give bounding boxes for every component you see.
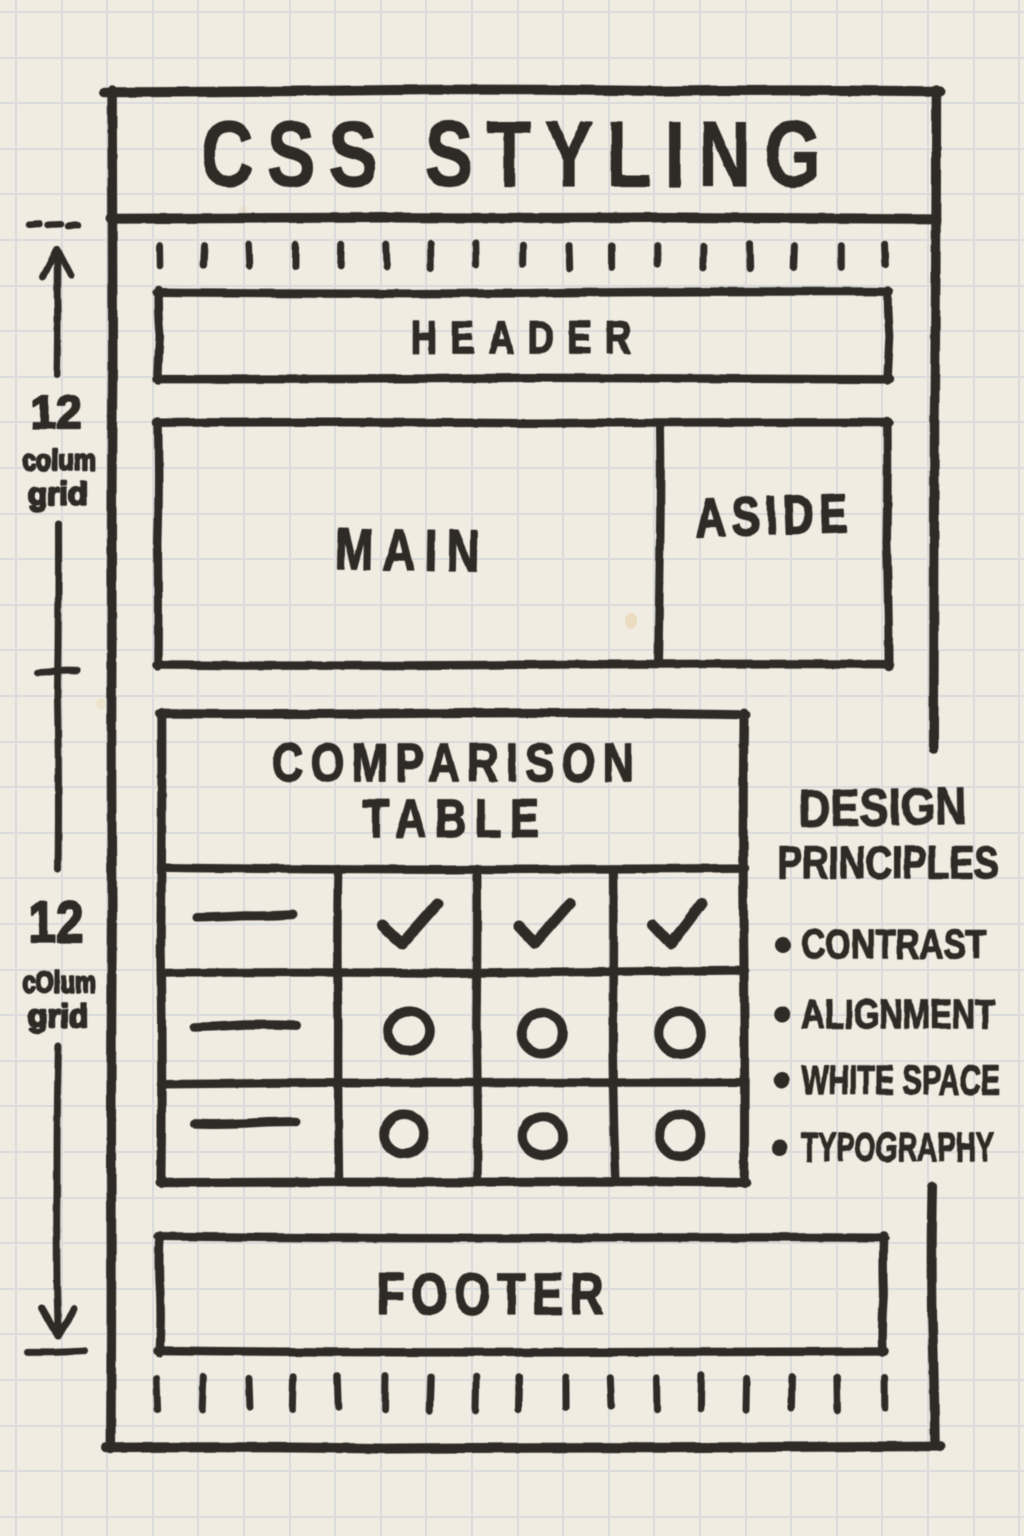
svg-text:ALIGNMENT: ALIGNMENT — [801, 991, 995, 1037]
svg-text:HEADER: HEADER — [411, 312, 645, 363]
svg-text:COMPARISON: COMPARISON — [272, 734, 641, 794]
svg-text:WHITE SPACE: WHITE SPACE — [801, 1057, 1000, 1103]
svg-text:TABLE: TABLE — [363, 790, 548, 850]
svg-text:grid: grid — [28, 476, 88, 512]
svg-text:12: 12 — [29, 890, 84, 955]
svg-text:FOOTER: FOOTER — [377, 1262, 611, 1327]
svg-text:grid: grid — [28, 998, 88, 1034]
svg-text:CONTRAST: CONTRAST — [801, 921, 986, 967]
svg-text:colum: colum — [22, 444, 96, 477]
svg-text:PRINCIPLES: PRINCIPLES — [778, 837, 999, 888]
svg-text:ASIDE: ASIDE — [694, 483, 854, 549]
svg-text:cOlum: cOlum — [22, 966, 96, 999]
svg-text:MAIN: MAIN — [335, 517, 489, 584]
svg-text:12: 12 — [30, 386, 81, 438]
svg-text:CSS STYLING: CSS STYLING — [201, 102, 835, 206]
svg-text:DESIGN: DESIGN — [798, 778, 967, 839]
svg-text:TYPOGRAPHY: TYPOGRAPHY — [801, 1124, 994, 1170]
